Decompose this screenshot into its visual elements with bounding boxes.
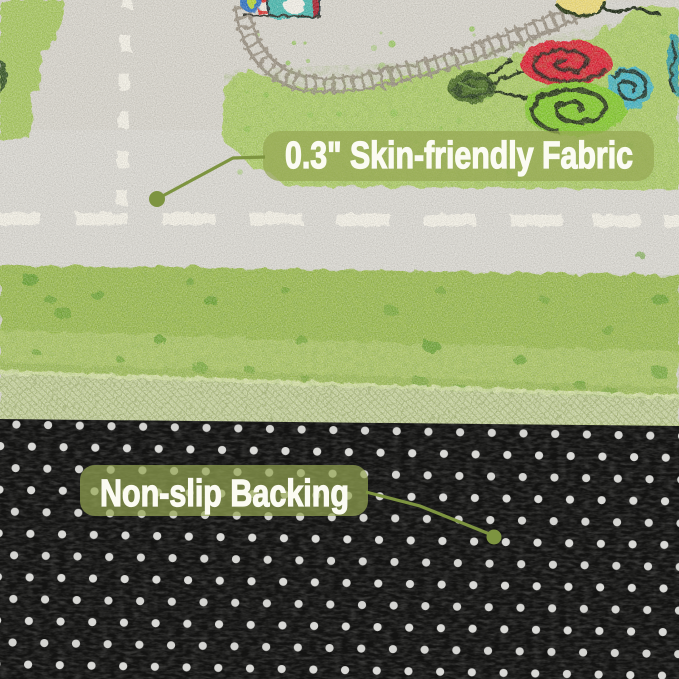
svg-text:0.3" Skin-friendly Fabric: 0.3" Skin-friendly Fabric xyxy=(285,135,633,177)
svg-text:Non-slip Backing: Non-slip Backing xyxy=(100,473,349,515)
